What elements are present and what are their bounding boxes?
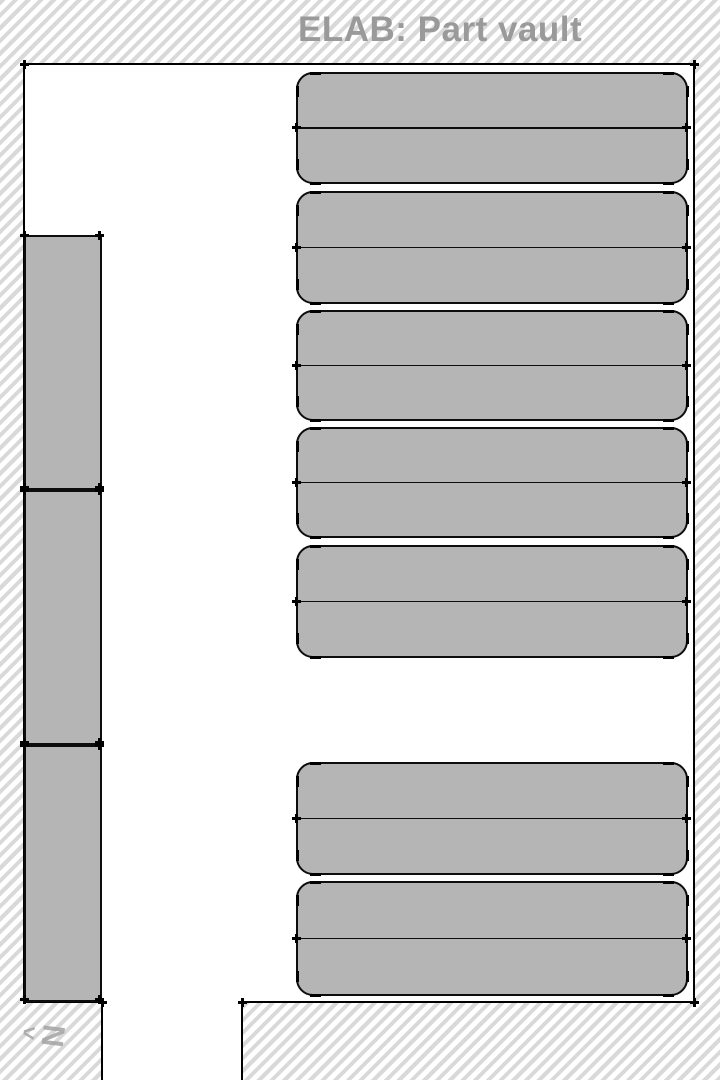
corner-marker: [20, 741, 29, 750]
room-corner-marker: [98, 998, 107, 1007]
corner-dash: [686, 205, 689, 216]
corner-dash: [310, 302, 321, 305]
shelf-row-block-5: [296, 545, 688, 658]
shelf-divider-line: [298, 938, 686, 940]
shelf-row-block-6: [296, 762, 688, 875]
shelf-divider-line: [298, 601, 686, 603]
room-area-doorway-corridor: [102, 1002, 242, 1080]
corner-dash: [663, 656, 674, 659]
divider-end-marker: [292, 243, 301, 252]
corner-dash: [663, 545, 674, 548]
corner-marker: [95, 231, 104, 240]
shelf-row-block-2: [296, 191, 688, 304]
corner-dash: [310, 545, 321, 548]
divider-end-marker: [682, 123, 691, 132]
shelf-divider-line: [298, 482, 686, 484]
corner-dash: [663, 881, 674, 884]
corner-dash: [686, 441, 689, 452]
corner-dash: [310, 656, 321, 659]
corner-dash: [686, 971, 689, 982]
shelf-divider-line: [298, 247, 686, 249]
room-corner-marker: [238, 998, 247, 1007]
shelf-row-block-3: [296, 310, 688, 421]
corner-marker: [20, 486, 29, 495]
divider-end-marker: [292, 123, 301, 132]
corner-dash: [296, 559, 299, 570]
corner-dash: [686, 159, 689, 170]
corner-dash: [310, 427, 321, 430]
corner-dash: [663, 310, 674, 313]
wall-top: [23, 63, 695, 65]
corner-dash: [686, 559, 689, 570]
left-storage-rack-3: [24, 745, 102, 1002]
north-label: N: [39, 1023, 70, 1049]
corner-dash: [663, 427, 674, 430]
shelf-row-block-7: [296, 881, 688, 996]
corner-dash: [663, 72, 674, 75]
corner-dash: [296, 441, 299, 452]
corner-dash: [310, 419, 321, 422]
divider-end-marker: [682, 597, 691, 606]
divider-end-marker: [292, 814, 301, 823]
room-corner-marker: [690, 998, 699, 1007]
corner-dash: [296, 86, 299, 97]
corner-dash: [663, 762, 674, 765]
wall-bottom-right-segment: [241, 1001, 695, 1003]
room-corner-marker: [20, 60, 29, 69]
corner-dash: [663, 536, 674, 539]
north-indicator: ^ N: [14, 1001, 79, 1070]
corner-dash: [296, 633, 299, 644]
corner-dash: [686, 279, 689, 290]
corner-dash: [686, 895, 689, 906]
corner-dash: [686, 776, 689, 787]
map-title: ELAB: Part vault: [298, 10, 582, 50]
corner-dash: [686, 513, 689, 524]
corner-dash: [663, 419, 674, 422]
corner-dash: [310, 72, 321, 75]
corner-dash: [686, 850, 689, 861]
corner-dash: [663, 302, 674, 305]
corner-dash: [686, 86, 689, 97]
corner-dash: [686, 633, 689, 644]
corner-dash: [296, 513, 299, 524]
divider-end-marker: [292, 361, 301, 370]
corner-marker: [95, 741, 104, 750]
divider-end-marker: [292, 478, 301, 487]
corner-dash: [310, 873, 321, 876]
left-storage-rack-1: [24, 235, 102, 490]
corner-dash: [663, 994, 674, 997]
corner-dash: [296, 205, 299, 216]
corner-dash: [310, 182, 321, 185]
shelf-divider-line: [298, 818, 686, 820]
corner-marker: [20, 231, 29, 240]
corner-dash: [296, 971, 299, 982]
divider-end-marker: [682, 814, 691, 823]
corner-dash: [296, 279, 299, 290]
floorplan-canvas: ELAB: Part vault ^ N: [0, 0, 720, 1080]
corner-dash: [663, 182, 674, 185]
divider-end-marker: [292, 597, 301, 606]
shelf-divider-line: [298, 127, 686, 129]
shelf-row-block-1: [296, 72, 688, 184]
corner-dash: [310, 536, 321, 539]
divider-end-marker: [682, 361, 691, 370]
wall-right: [693, 63, 695, 1003]
corner-marker: [95, 486, 104, 495]
divider-end-marker: [682, 243, 691, 252]
corner-dash: [663, 191, 674, 194]
wall-corridor-right: [241, 1001, 243, 1080]
corner-dash: [310, 762, 321, 765]
corner-dash: [686, 396, 689, 407]
corner-dash: [310, 994, 321, 997]
corner-dash: [310, 881, 321, 884]
wall-corridor-left: [101, 1001, 103, 1080]
divider-end-marker: [292, 934, 301, 943]
room-corner-marker: [690, 60, 699, 69]
corner-dash: [296, 324, 299, 335]
divider-end-marker: [682, 934, 691, 943]
corner-dash: [296, 895, 299, 906]
corner-dash: [686, 324, 689, 335]
shelf-row-block-4: [296, 427, 688, 538]
divider-end-marker: [682, 478, 691, 487]
corner-dash: [310, 310, 321, 313]
corner-dash: [663, 873, 674, 876]
corner-dash: [296, 776, 299, 787]
left-storage-rack-2: [24, 490, 102, 745]
corner-dash: [296, 850, 299, 861]
corner-dash: [310, 191, 321, 194]
shelf-divider-line: [298, 365, 686, 367]
corner-dash: [296, 396, 299, 407]
corner-dash: [296, 159, 299, 170]
